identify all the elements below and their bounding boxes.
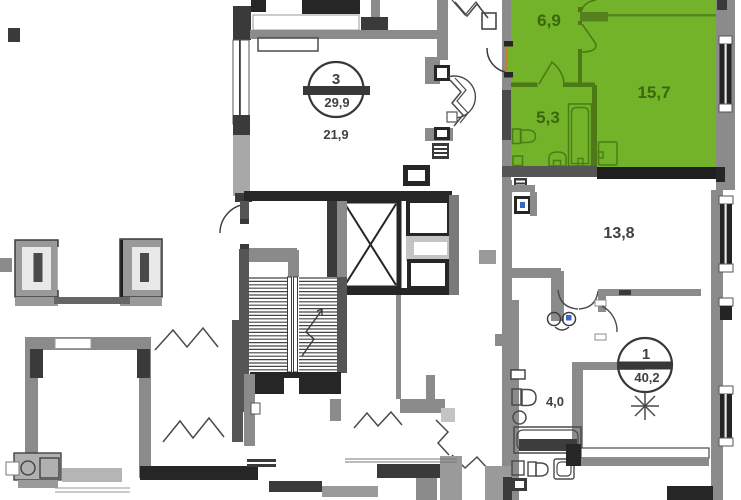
svg-text:40,2: 40,2	[634, 370, 659, 385]
svg-text:3: 3	[332, 71, 340, 88]
svg-text:6,9: 6,9	[537, 11, 561, 30]
svg-text:4,0: 4,0	[546, 394, 564, 409]
svg-text:13,8: 13,8	[603, 225, 634, 242]
svg-text:15,7: 15,7	[637, 83, 670, 102]
svg-text:29,9: 29,9	[324, 95, 349, 110]
svg-text:21,9: 21,9	[323, 127, 348, 142]
svg-text:1: 1	[642, 346, 650, 363]
svg-text:5,3: 5,3	[536, 108, 560, 127]
